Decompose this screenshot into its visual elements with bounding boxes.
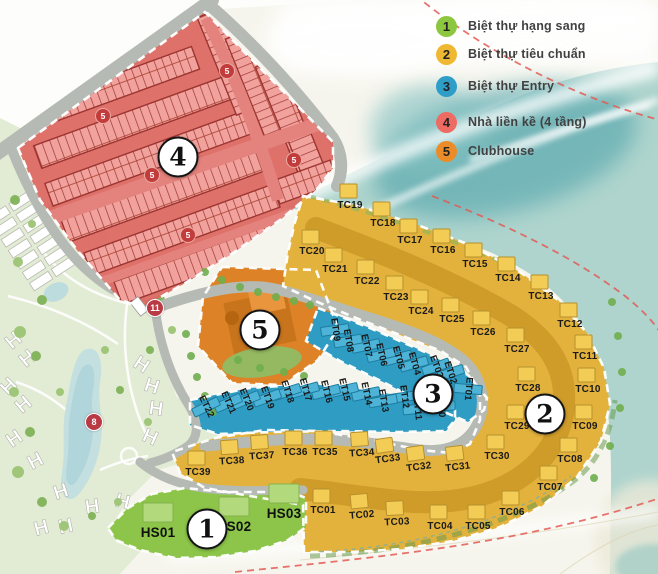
legend-label-2: Biệt thự tiêu chuẩn xyxy=(468,47,586,61)
house-TC10 xyxy=(578,368,595,382)
lot-label-TC15: TC15 xyxy=(462,260,487,270)
house-HS03 xyxy=(269,484,299,503)
lot-label-TC10: TC10 xyxy=(575,385,600,395)
legend-dot-5: 5 xyxy=(436,141,457,162)
house-TC15 xyxy=(465,243,482,257)
lot-label-TC12: TC12 xyxy=(557,320,582,330)
lot-label-TC17: TC17 xyxy=(397,236,422,246)
lot-label-HS01: HS01 xyxy=(141,526,176,540)
legend-dot-3: 3 xyxy=(436,76,457,97)
house-TC22 xyxy=(357,260,374,274)
house-TC03 xyxy=(386,501,404,516)
house-TC01 xyxy=(313,489,330,503)
lot-label-TC26: TC26 xyxy=(470,328,495,338)
house-TC20 xyxy=(302,230,319,244)
lot-label-ET12: ET12 xyxy=(398,385,411,410)
zone-marker-2: 2 xyxy=(525,394,566,435)
legend-item-2: 2 Biệt thự tiêu chuẩn xyxy=(436,43,586,65)
house-TC32 xyxy=(406,445,425,461)
legend-item-3: 3 Biệt thự Entry xyxy=(436,75,554,97)
zone-marker-5: 5 xyxy=(240,310,281,351)
legend-label-3: Biệt thự Entry xyxy=(468,79,554,93)
lot-label-TC23: TC23 xyxy=(383,293,408,303)
house-TC11 xyxy=(575,335,592,349)
road-badge-11: 11 xyxy=(146,299,164,317)
lot-label-TC03: TC03 xyxy=(384,517,410,528)
house-TC07 xyxy=(540,466,557,480)
lot-label-TC22: TC22 xyxy=(354,277,379,287)
lot-label-TC06: TC06 xyxy=(499,508,524,518)
house-TC35 xyxy=(315,431,332,445)
lot-label-TC21: TC21 xyxy=(322,265,347,275)
house-TC39 xyxy=(188,451,205,465)
house-TC33 xyxy=(375,437,394,453)
master-plan-map: HHHHHHHHHHHHHHHHH xyxy=(0,0,658,574)
zone-marker-1: 1 xyxy=(187,509,228,550)
lot-label-HS03: HS03 xyxy=(267,507,302,520)
lot-label-TC36: TC36 xyxy=(282,448,307,458)
house-TC13 xyxy=(531,275,548,289)
house-TC37 xyxy=(250,435,268,450)
house-TC09 xyxy=(575,405,592,419)
house-TC16 xyxy=(433,229,450,243)
lot-label-TC13: TC13 xyxy=(528,292,553,302)
house-TC05 xyxy=(468,505,485,519)
zone-marker-3: 3 xyxy=(413,374,454,415)
house-TC30 xyxy=(487,435,504,449)
lot-label-TC11: TC11 xyxy=(573,352,598,362)
house-TC31 xyxy=(445,445,464,461)
block-badge-4: 5 xyxy=(286,152,302,168)
lot-label-TC14: TC14 xyxy=(495,274,520,284)
lot-label-ET09: ET09 xyxy=(329,318,342,343)
legend-label-1: Biệt thự hạng sang xyxy=(468,19,586,33)
lot-label-TC05: TC05 xyxy=(465,522,490,532)
house-TC17 xyxy=(400,219,417,233)
legend-item-5: 5 Clubhouse xyxy=(436,140,534,162)
lot-label-TC19: TC19 xyxy=(337,201,362,211)
legend-label-5: Clubhouse xyxy=(468,144,534,158)
house-TC25 xyxy=(442,298,459,312)
house-TC26 xyxy=(473,311,490,325)
lot-label-TC34: TC34 xyxy=(349,448,375,460)
block-badge-1: 5 xyxy=(144,167,160,183)
lot-label-TC27: TC27 xyxy=(504,345,529,355)
house-TC29 xyxy=(507,405,524,419)
zone-marker-4: 4 xyxy=(158,137,199,178)
house-TC21 xyxy=(325,248,342,262)
road-badge-8: 8 xyxy=(85,413,103,431)
lot-label-TC04: TC04 xyxy=(427,522,452,532)
house-TC08 xyxy=(560,438,577,452)
house-TC06 xyxy=(502,491,519,505)
lot-label-TC28: TC28 xyxy=(515,384,540,394)
block-badge-2: 5 xyxy=(219,63,235,79)
house-TC36 xyxy=(285,431,302,445)
house-TC34 xyxy=(350,432,368,447)
lot-label-TC38: TC38 xyxy=(219,456,245,468)
house-TC23 xyxy=(386,276,403,290)
lot-label-TC18: TC18 xyxy=(370,219,395,229)
lot-label-TC24: TC24 xyxy=(408,307,433,317)
legend-dot-2: 2 xyxy=(436,44,457,65)
house-TC14 xyxy=(498,257,515,271)
lot-label-TC16: TC16 xyxy=(430,246,455,256)
legend-label-4: Nhà liền kề (4 tầng) xyxy=(468,115,587,129)
house-TC02 xyxy=(350,493,368,508)
legend-dot-1: 1 xyxy=(436,16,457,37)
lot-label-TC07: TC07 xyxy=(537,483,562,493)
lot-label-TC20: TC20 xyxy=(299,247,324,257)
lot-label-ET01: ET01 xyxy=(462,377,474,401)
house-HS01 xyxy=(143,503,173,522)
lot-label-TC25: TC25 xyxy=(439,315,464,325)
svg-text:H: H xyxy=(147,397,164,421)
lot-label-TC39: TC39 xyxy=(185,468,210,478)
lot-label-TC35: TC35 xyxy=(312,448,337,458)
legend-item-1: 1 Biệt thự hạng sang xyxy=(436,15,586,37)
legend: 1 Biệt thự hạng sang 2 Biệt thự tiêu chu… xyxy=(436,12,656,172)
block-badge-0: 5 xyxy=(95,108,111,124)
legend-item-4: 4 Nhà liền kề (4 tầng) xyxy=(436,111,587,133)
lot-label-TC37: TC37 xyxy=(249,451,275,463)
lot-label-TC30: TC30 xyxy=(484,452,509,462)
house-HS02 xyxy=(219,497,249,516)
lot-label-TC09: TC09 xyxy=(572,422,597,432)
house-TC04 xyxy=(430,505,447,519)
house-TC24 xyxy=(411,290,428,304)
house-TC38 xyxy=(220,440,238,455)
house-TC19 xyxy=(340,184,357,198)
legend-dot-4: 4 xyxy=(436,112,457,133)
lot-label-TC08: TC08 xyxy=(557,455,582,465)
house-TC27 xyxy=(507,328,524,342)
house-TC18 xyxy=(373,202,390,216)
block-badge-3: 5 xyxy=(180,227,196,243)
house-TC12 xyxy=(560,303,577,317)
lot-label-TC01: TC01 xyxy=(310,506,335,516)
house-TC28 xyxy=(518,367,535,381)
